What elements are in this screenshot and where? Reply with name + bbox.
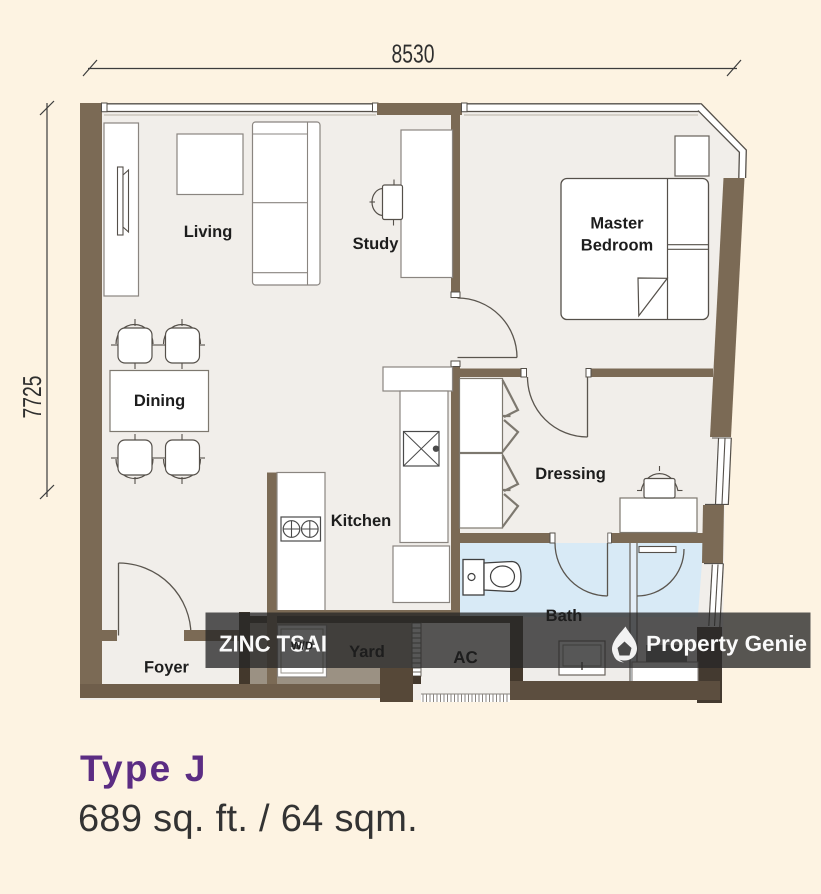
svg-text:689 sq. ft. / 64 sqm.: 689 sq. ft. / 64 sqm. xyxy=(78,798,418,840)
svg-text:Bedroom: Bedroom xyxy=(581,237,653,255)
svg-text:Yard: Yard xyxy=(349,643,385,661)
svg-text:Type J: Type J xyxy=(80,748,208,789)
svg-text:W/D: W/D xyxy=(291,641,313,653)
svg-text:AC: AC xyxy=(453,648,478,667)
svg-text:Property Genie: Property Genie xyxy=(646,631,807,656)
svg-text:Study: Study xyxy=(353,235,400,253)
svg-text:Foyer: Foyer xyxy=(144,659,190,677)
svg-text:Bath: Bath xyxy=(546,607,583,625)
svg-text:Dressing: Dressing xyxy=(535,465,606,483)
svg-text:Living: Living xyxy=(184,223,233,241)
svg-text:8530: 8530 xyxy=(392,39,435,69)
svg-text:7725: 7725 xyxy=(17,376,47,419)
svg-text:Master: Master xyxy=(590,215,644,233)
svg-text:Dining: Dining xyxy=(134,392,185,410)
svg-text:Kitchen: Kitchen xyxy=(331,512,392,530)
